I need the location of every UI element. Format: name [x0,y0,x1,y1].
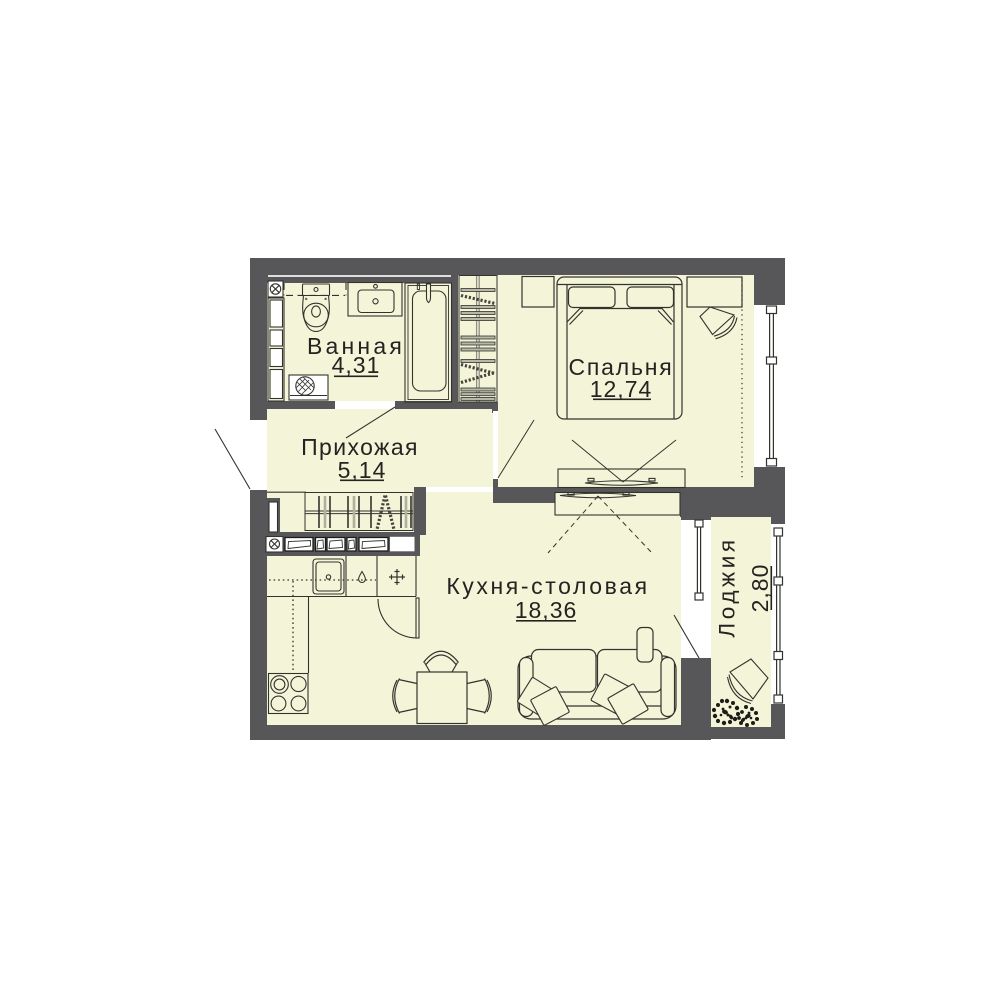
svg-text:18,36: 18,36 [515,597,578,623]
svg-text:Кухня-столовая: Кухня-столовая [446,573,649,599]
svg-text:2,80: 2,80 [747,564,773,613]
svg-text:Лоджия: Лоджия [715,536,740,637]
svg-text:5,14: 5,14 [338,457,387,483]
svg-text:4,31: 4,31 [332,352,381,378]
svg-text:12,74: 12,74 [590,376,653,402]
